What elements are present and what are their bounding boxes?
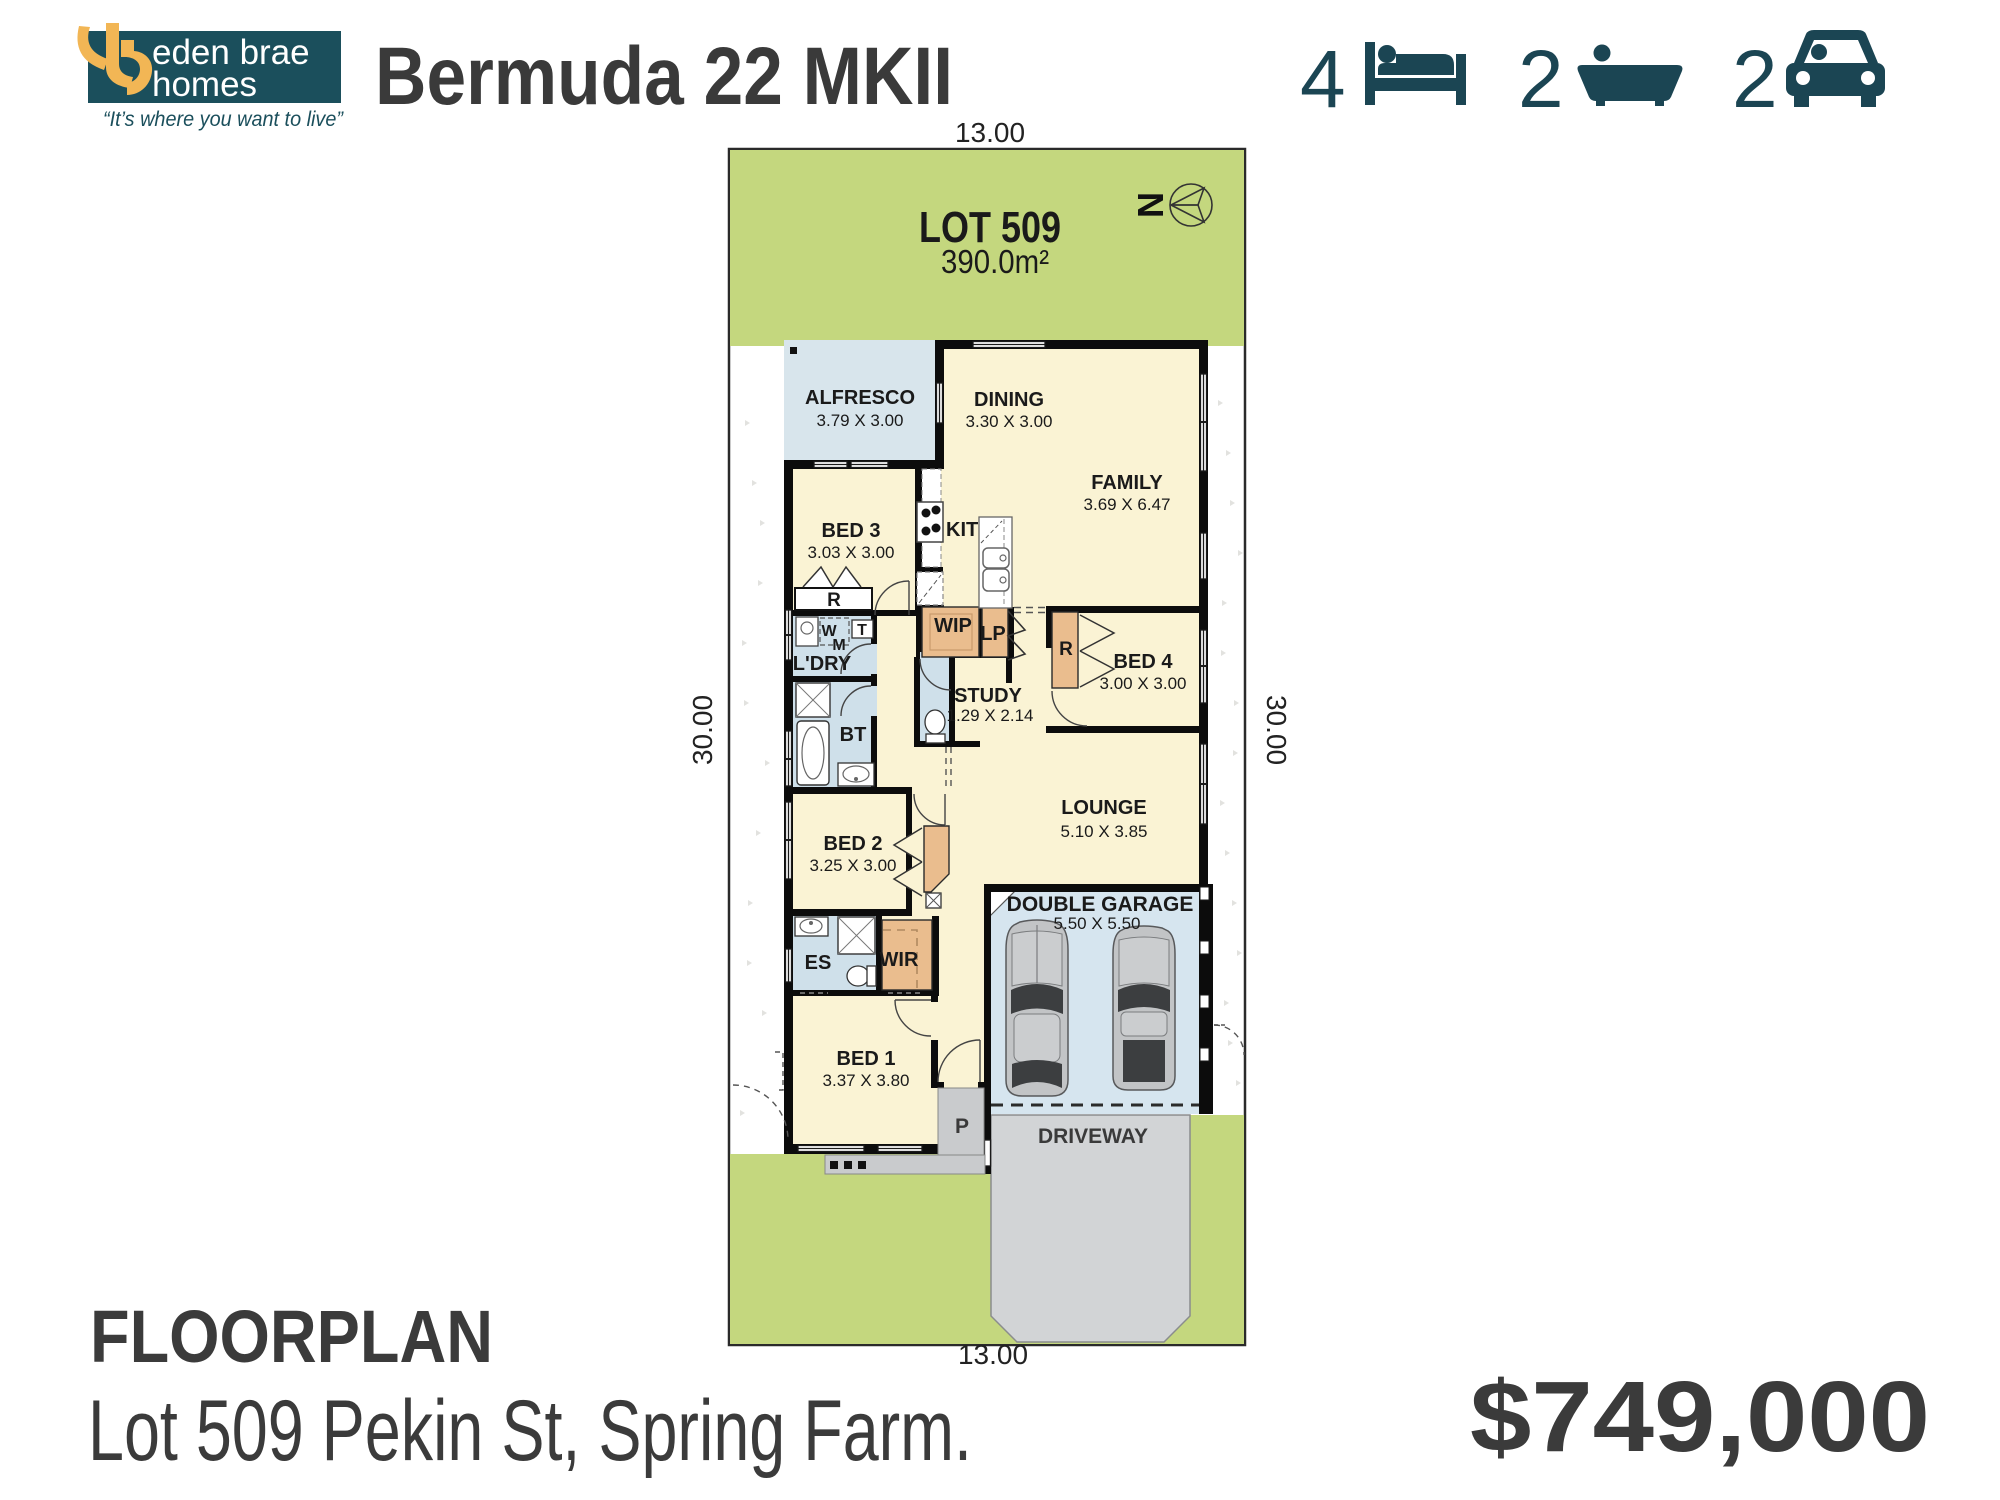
svg-text:ES: ES: [805, 952, 832, 974]
svg-text:KIT: KIT: [946, 519, 978, 541]
svg-text:30.00: 30.00: [1261, 695, 1292, 765]
svg-text:WIP: WIP: [934, 615, 972, 637]
svg-text:3.37 X 3.80: 3.37 X 3.80: [823, 1071, 910, 1090]
svg-text:4: 4: [1300, 34, 1346, 125]
svg-text:P: P: [955, 1115, 969, 1138]
svg-text:LOUNGE: LOUNGE: [1061, 797, 1147, 819]
svg-text:1.29 X 2.14: 1.29 X 2.14: [947, 706, 1034, 725]
svg-text:5.10 X 3.85: 5.10 X 3.85: [1061, 822, 1148, 841]
svg-text:$749,000: $749,000: [1470, 1361, 1930, 1473]
svg-text:13.00: 13.00: [955, 117, 1025, 148]
svg-text:Bermuda 22 MKII: Bermuda 22 MKII: [375, 31, 953, 122]
svg-text:BED 4: BED 4: [1114, 651, 1174, 673]
svg-text:3.30 X 3.00: 3.30 X 3.00: [966, 412, 1053, 431]
svg-text:DRIVEWAY: DRIVEWAY: [1038, 1125, 1148, 1148]
svg-text:3.69 X 6.47: 3.69 X 6.47: [1084, 495, 1171, 514]
svg-text:3.00 X 3.00: 3.00 X 3.00: [1100, 674, 1187, 693]
svg-text:30.00: 30.00: [687, 695, 718, 765]
svg-text:DOUBLE GARAGE: DOUBLE GARAGE: [1007, 893, 1194, 916]
svg-text:N: N: [1130, 192, 1171, 218]
svg-text:FAMILY: FAMILY: [1091, 472, 1163, 494]
svg-text:2: 2: [1518, 34, 1564, 125]
svg-text:R: R: [827, 590, 841, 611]
svg-text:DINING: DINING: [974, 389, 1044, 411]
svg-text:Lot 509 Pekin St, Spring Farm.: Lot 509 Pekin St, Spring Farm.: [88, 1383, 972, 1479]
svg-text:BED 3: BED 3: [822, 520, 881, 542]
svg-text:5.50 X 5.50: 5.50 X 5.50: [1054, 914, 1141, 933]
svg-text:FLOORPLAN: FLOORPLAN: [90, 1295, 493, 1378]
svg-text:LP: LP: [980, 623, 1006, 645]
svg-text:“It’s where you want to live”: “It’s where you want to live”: [103, 108, 344, 131]
svg-text:BED 1: BED 1: [837, 1048, 896, 1070]
svg-text:3.79 X 3.00: 3.79 X 3.00: [817, 411, 904, 430]
svg-text:ALFRESCO: ALFRESCO: [805, 387, 915, 409]
svg-text:390.0m²: 390.0m²: [941, 243, 1049, 280]
svg-text:STUDY: STUDY: [954, 685, 1022, 707]
svg-text:R: R: [1059, 639, 1073, 660]
svg-text:L'DRY: L'DRY: [793, 653, 852, 675]
svg-text:BT: BT: [840, 724, 867, 746]
svg-text:WIR: WIR: [880, 949, 919, 971]
svg-text:homes: homes: [152, 65, 257, 104]
svg-text:2: 2: [1732, 34, 1778, 125]
svg-text:T: T: [857, 622, 867, 639]
svg-text:M: M: [832, 637, 845, 654]
svg-text:3.25 X 3.00: 3.25 X 3.00: [810, 856, 897, 875]
svg-text:BED 2: BED 2: [824, 833, 883, 855]
svg-text:3.03 X 3.00: 3.03 X 3.00: [808, 543, 895, 562]
